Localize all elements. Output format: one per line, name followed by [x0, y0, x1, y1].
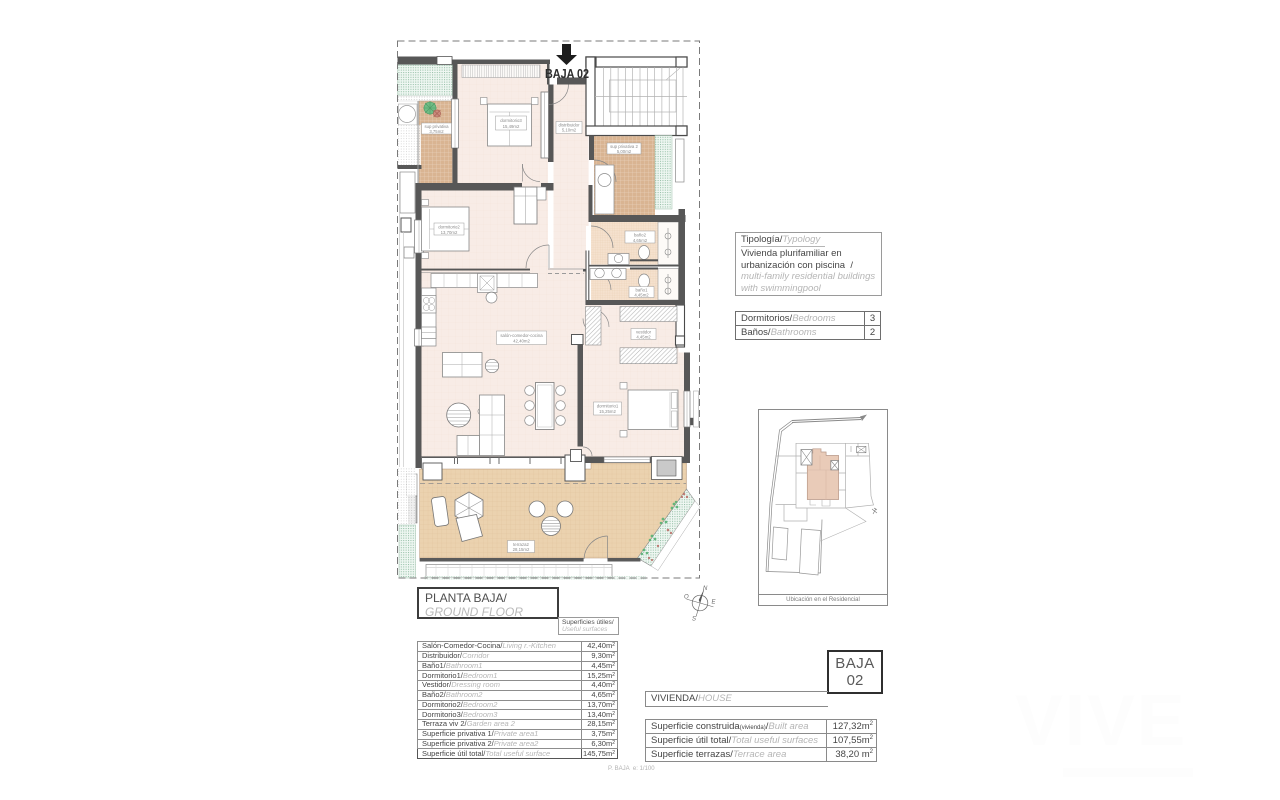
svg-text:O: O: [684, 595, 689, 601]
svg-text:3,75m2: 3,75m2: [429, 129, 444, 134]
svg-text:dormitorio3: dormitorio3: [500, 118, 522, 123]
svg-text:28,15m2: 28,15m2: [513, 547, 530, 552]
svg-text:4,45m2: 4,45m2: [634, 293, 649, 298]
svg-text:baño2: baño2: [634, 233, 647, 238]
svg-text:5,10m2: 5,10m2: [562, 128, 577, 133]
svg-text:15,25m2: 15,25m2: [599, 409, 616, 414]
svg-text:BAJA 02: BAJA 02: [545, 66, 589, 81]
svg-text:dormitorio1: dormitorio1: [597, 404, 619, 409]
svg-text:4,45m2: 4,45m2: [636, 335, 651, 340]
svg-text:42,40m2: 42,40m2: [513, 339, 530, 344]
svg-text:13,70m2: 13,70m2: [441, 230, 458, 235]
svg-text:salón-comedor-cocina: salón-comedor-cocina: [500, 333, 543, 338]
svg-text:dormitorio2: dormitorio2: [438, 225, 460, 230]
svg-text:4,65m2: 4,65m2: [633, 238, 648, 243]
svg-text:S: S: [692, 617, 696, 623]
svg-text:15,49m2: 15,49m2: [503, 124, 520, 129]
svg-text:5,00m2: 5,00m2: [617, 149, 632, 154]
svg-text:E: E: [712, 600, 717, 606]
svg-text:N: N: [703, 586, 708, 592]
